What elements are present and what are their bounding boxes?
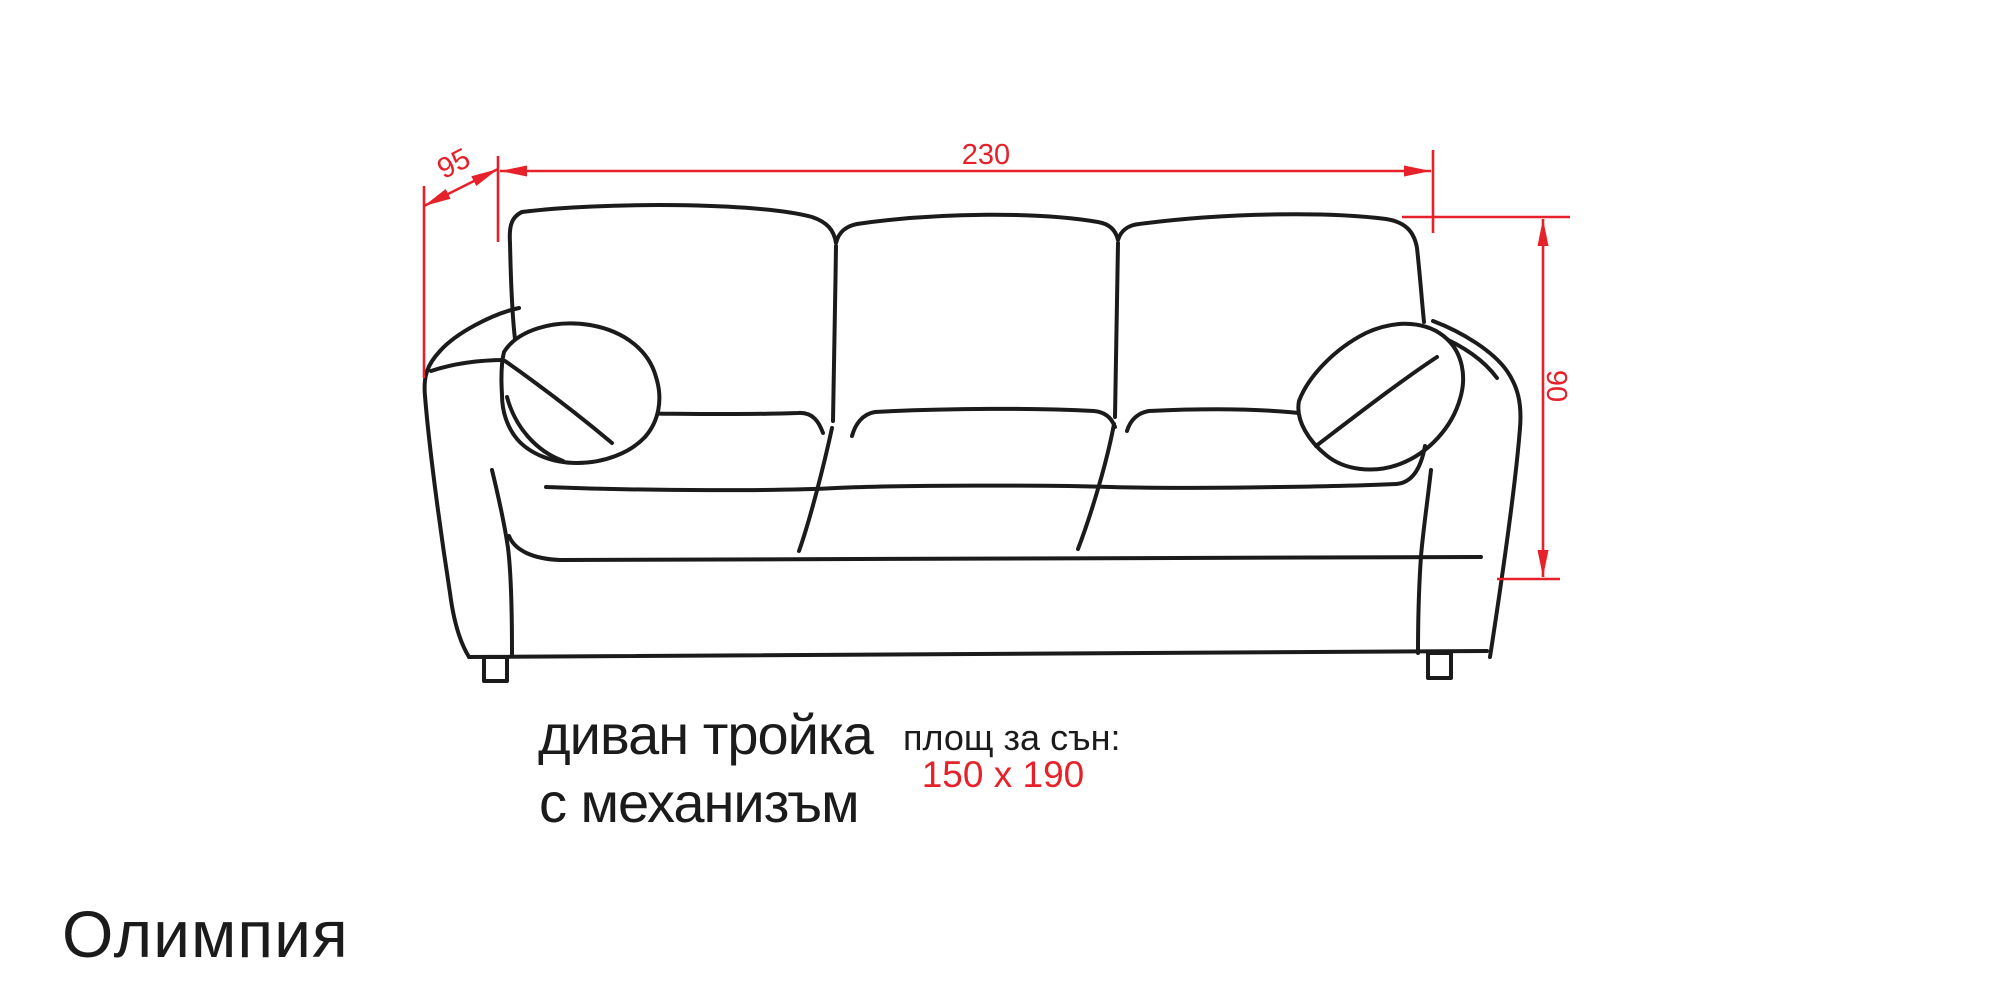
- depth-dimension-value: 95: [432, 142, 475, 185]
- sleeping-area-value: 150 x 190: [922, 754, 1085, 795]
- right-leg: [1428, 653, 1451, 678]
- product-type-line1: диван тройка: [538, 703, 875, 766]
- right-arm-front-edge: [1418, 470, 1431, 653]
- height-dimension-value: 90: [1540, 370, 1572, 402]
- left-leg: [484, 657, 507, 681]
- left-arm-roll-line: [431, 360, 506, 371]
- seat-front-edge: [509, 536, 1481, 560]
- cushion-seam-2: [1115, 243, 1118, 417]
- product-name: Олимпия: [62, 897, 349, 971]
- sofa-bottom-edge: [469, 651, 1487, 657]
- depth-arrowhead-left: [424, 189, 451, 206]
- width-dimension-value: 230: [962, 139, 1010, 171]
- cushion3-bottom-edge: [1127, 409, 1308, 431]
- sofa-outline: [425, 205, 1521, 681]
- left-arm-pillow: [501, 323, 659, 463]
- captions: диван тройка с механизъм площ за сън: 15…: [62, 703, 1120, 971]
- width-arrowhead-right: [1404, 166, 1431, 177]
- seat-back-line: [546, 446, 1425, 490]
- height-arrowhead-top: [1538, 219, 1549, 246]
- product-type-line2: с механизъм: [539, 771, 859, 834]
- sleeping-area-label: площ за сън:: [903, 717, 1120, 758]
- cushion-seam-1: [833, 246, 836, 421]
- back-cushions-top-edge: [522, 205, 1424, 322]
- depth-arrowhead-right: [471, 169, 498, 186]
- left-arm-front-edge: [492, 470, 512, 654]
- cushion2-bottom-edge: [852, 409, 1115, 436]
- height-arrowhead-bottom: [1538, 550, 1549, 577]
- sofa-dimension-diagram: 95 230 90 диван тройка с механизъм площ …: [0, 0, 2000, 1006]
- width-arrowhead-left: [500, 166, 527, 177]
- sofa-dimension-diagram-page: 95 230 90 диван тройка с механизъм площ …: [0, 0, 2000, 1006]
